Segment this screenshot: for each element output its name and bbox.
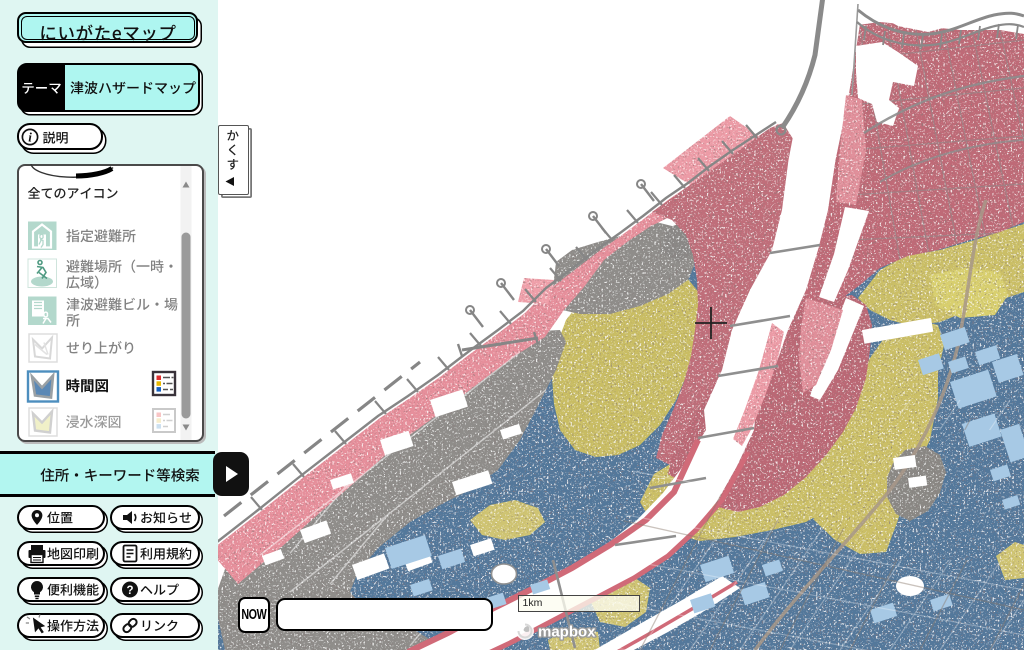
svg-text:mapbox: mapbox (538, 624, 596, 641)
svg-text:i: i (28, 130, 32, 145)
svg-text:?: ? (126, 585, 133, 597)
